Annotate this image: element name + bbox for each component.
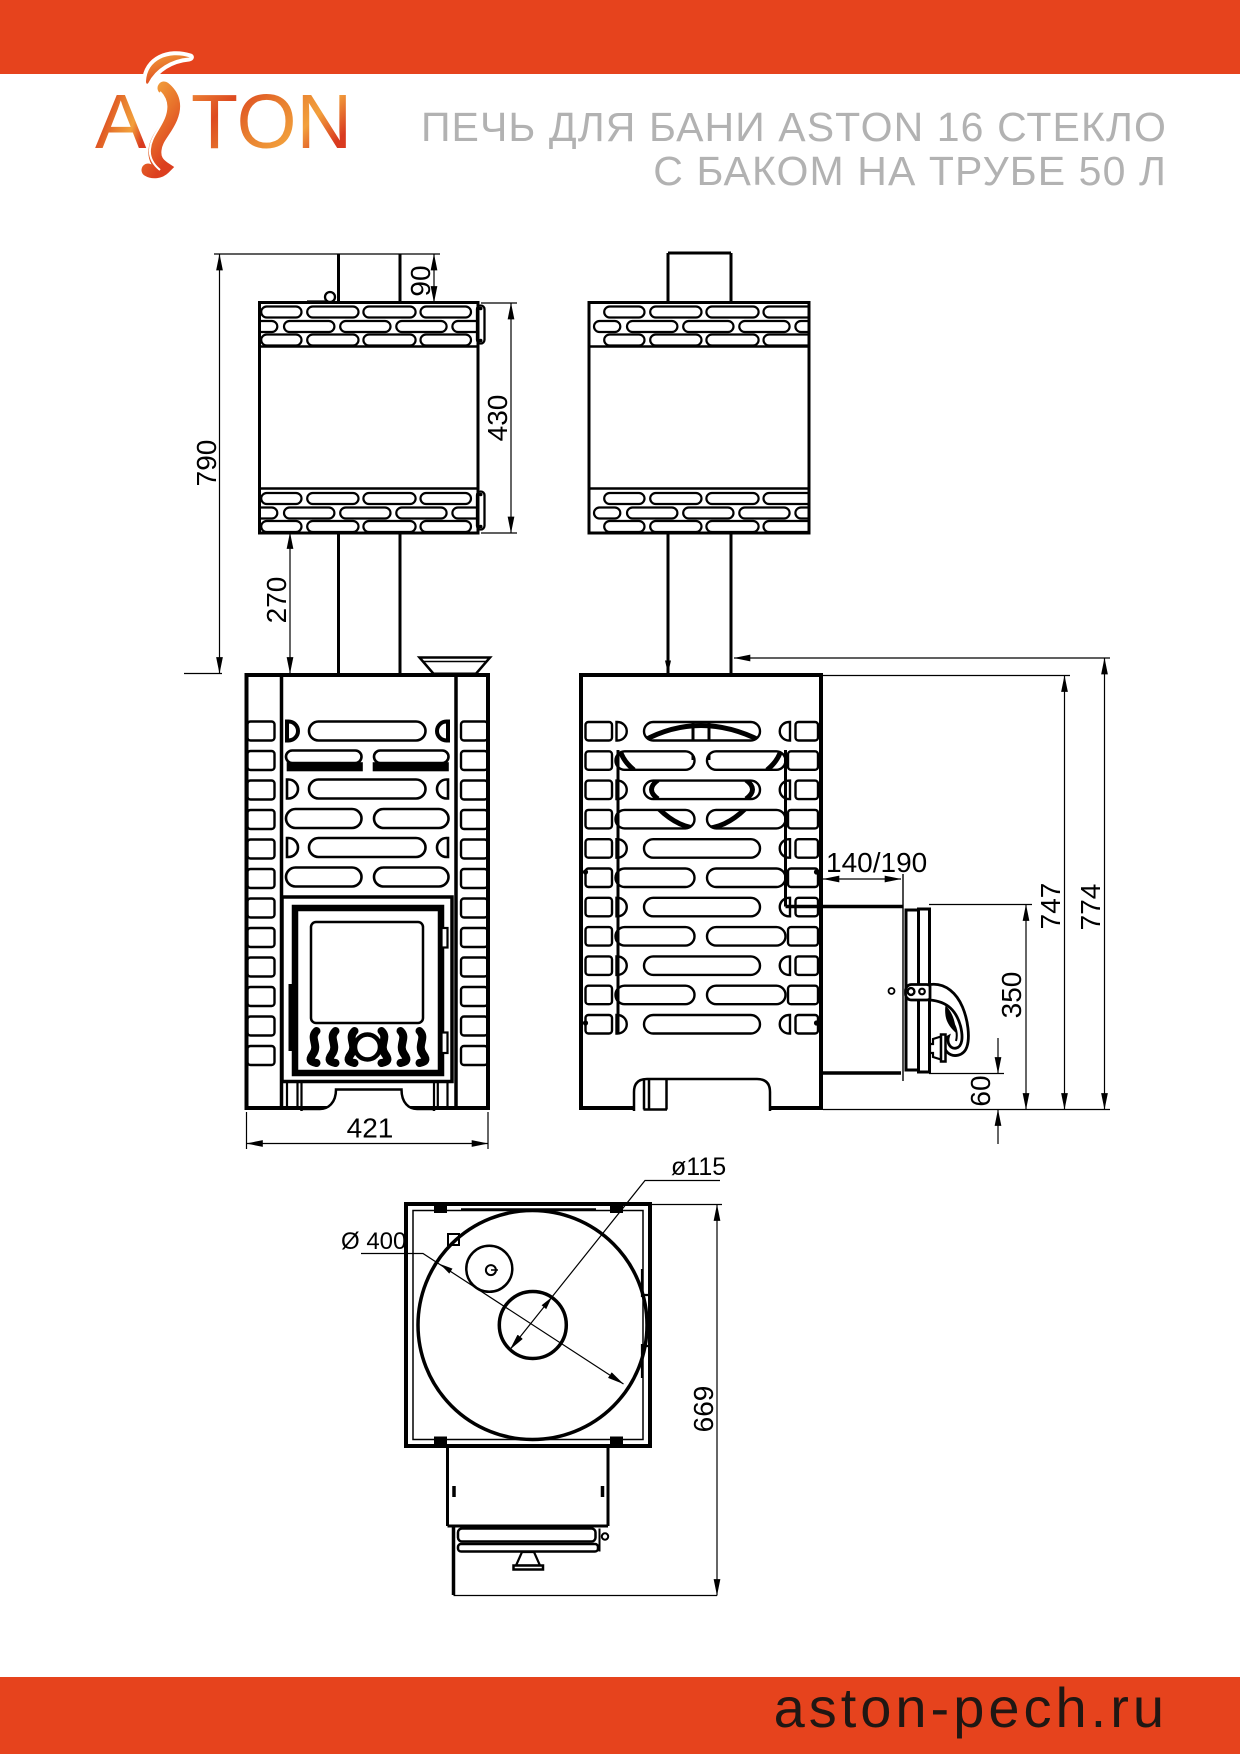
svg-text:ø115: ø115 <box>671 1153 726 1181</box>
svg-text:ПЕЧЬ ДЛЯ БАНИ ASTON 16 СТЕКЛО: ПЕЧЬ ДЛЯ БАНИ ASTON 16 СТЕКЛО <box>421 104 1167 150</box>
svg-text:669: 669 <box>688 1386 719 1433</box>
svg-text:421: 421 <box>347 1113 394 1144</box>
svg-text:350: 350 <box>996 972 1027 1019</box>
svg-text:aston-pech.ru: aston-pech.ru <box>774 1676 1168 1739</box>
svg-text:A: A <box>95 79 147 165</box>
svg-text:60: 60 <box>965 1075 996 1106</box>
svg-text:С БАКОМ НА ТРУБЕ 50 Л: С БАКОМ НА ТРУБЕ 50 Л <box>653 148 1167 194</box>
svg-text:790: 790 <box>191 440 222 487</box>
svg-text:90: 90 <box>405 265 436 296</box>
svg-text:Ø 400: Ø 400 <box>341 1228 406 1255</box>
svg-text:140/190: 140/190 <box>826 847 927 878</box>
svg-text:270: 270 <box>261 577 292 624</box>
svg-text:774: 774 <box>1075 884 1106 931</box>
svg-text:TON: TON <box>191 79 352 165</box>
svg-text:430: 430 <box>482 395 513 442</box>
svg-text:747: 747 <box>1035 883 1066 930</box>
